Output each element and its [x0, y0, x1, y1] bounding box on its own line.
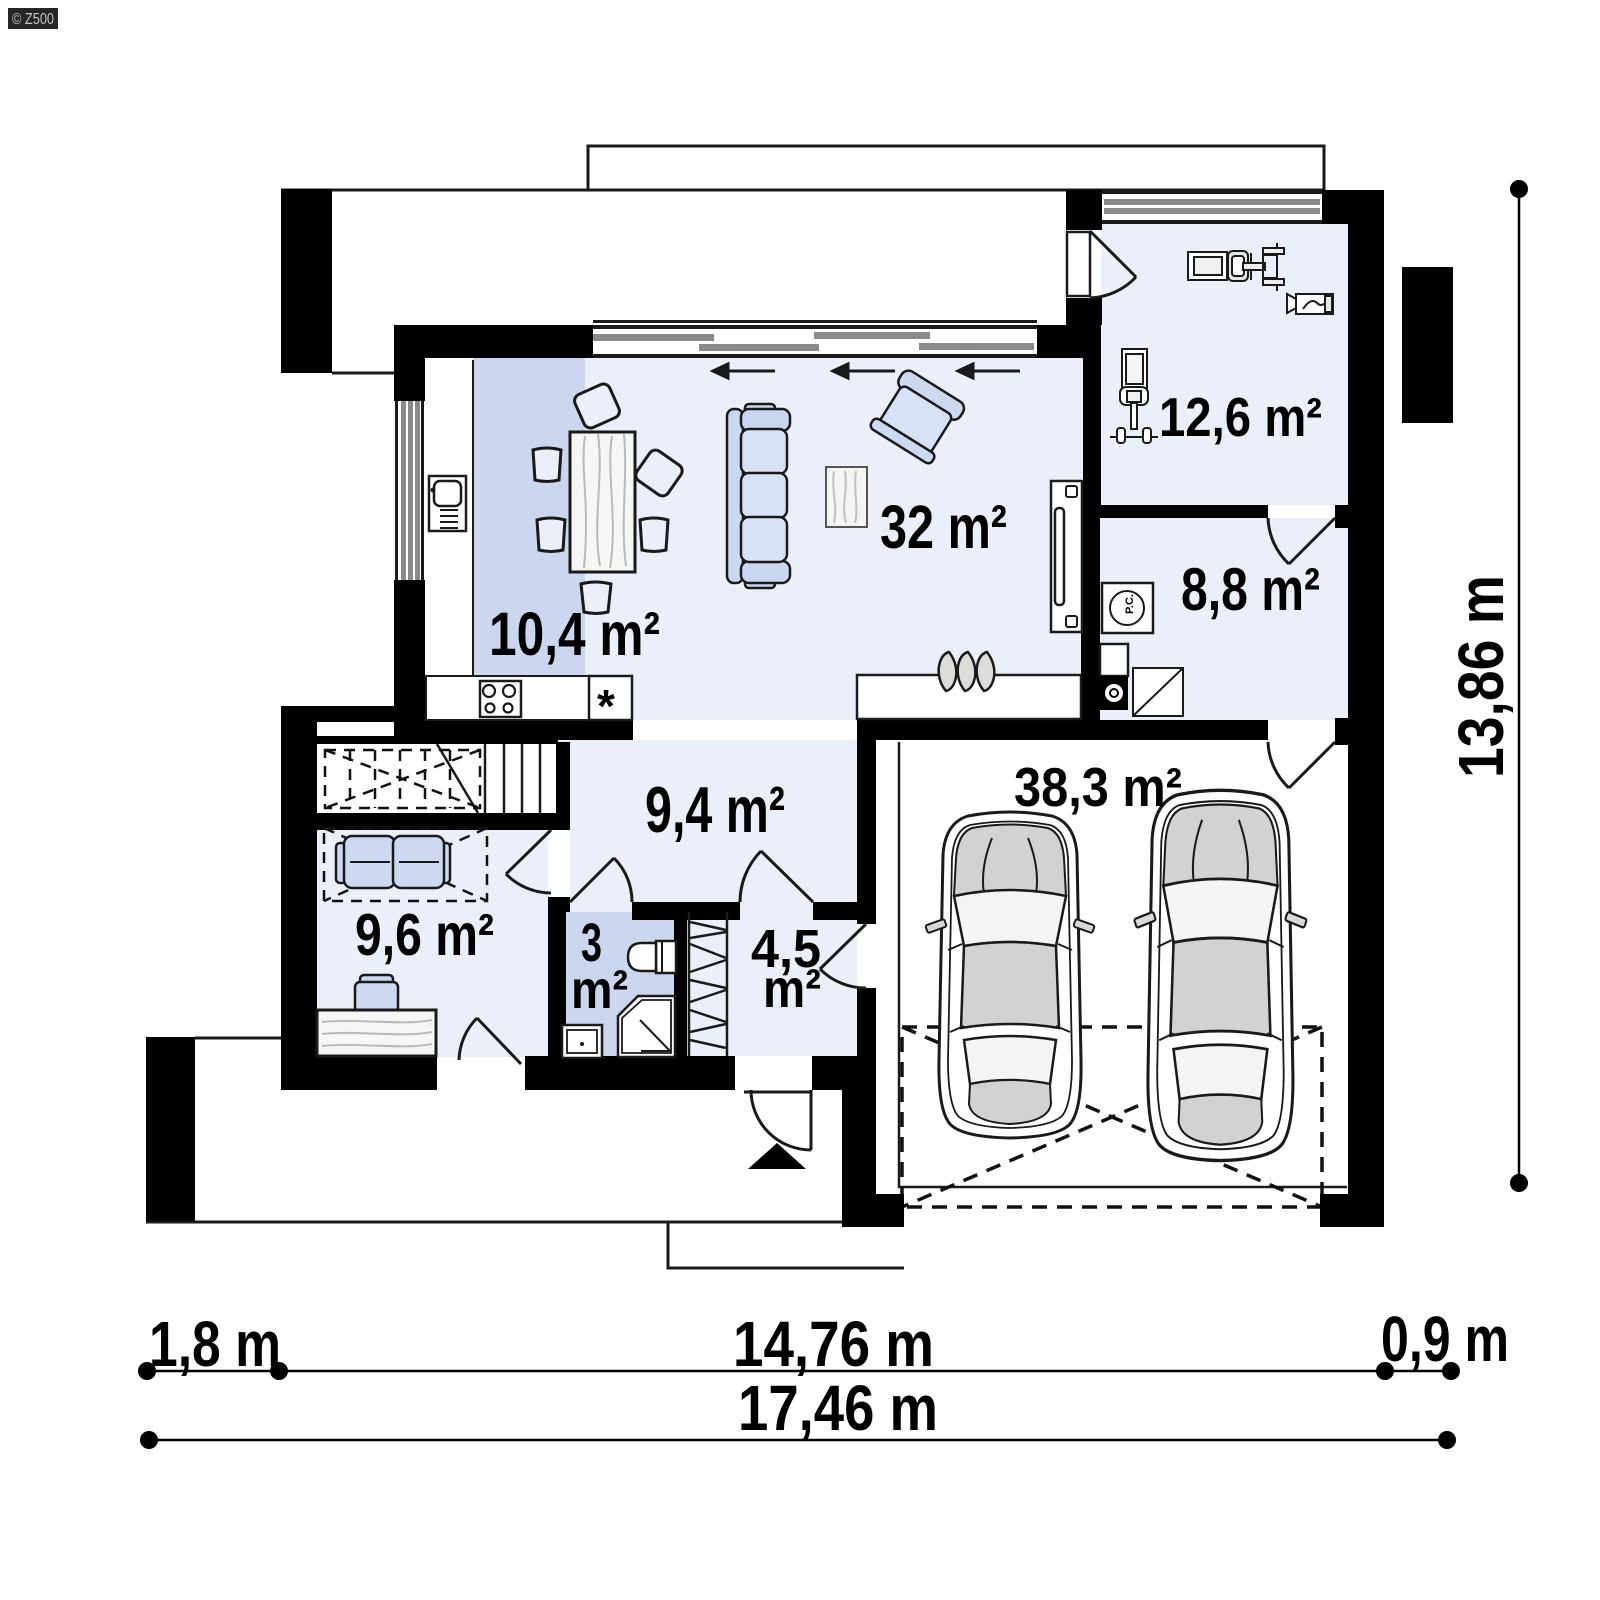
svg-text:*: * [597, 680, 615, 732]
svg-text:8,8 m²: 8,8 m² [1181, 556, 1320, 623]
svg-text:32 m²: 32 m² [880, 493, 1007, 561]
svg-text:0,9 m: 0,9 m [1381, 1303, 1509, 1375]
svg-text:38,3 m²: 38,3 m² [1014, 756, 1182, 818]
svg-text:1,8 m: 1,8 m [149, 1308, 281, 1380]
svg-text:© Z500: © Z500 [12, 11, 54, 28]
svg-text:14,76 m: 14,76 m [733, 1308, 934, 1380]
svg-text:m²: m² [571, 960, 628, 1020]
svg-text:13,86 m: 13,86 m [1445, 575, 1517, 778]
svg-text:9,4 m²: 9,4 m² [645, 773, 785, 846]
svg-text:10,4 m²: 10,4 m² [489, 600, 660, 668]
svg-text:9,6 m²: 9,6 m² [355, 902, 494, 968]
svg-text:P.C.: P.C. [1124, 594, 1136, 614]
svg-text:m²: m² [763, 959, 821, 1019]
svg-text:12,6 m²: 12,6 m² [1159, 386, 1322, 448]
svg-text:17,46 m: 17,46 m [738, 1372, 938, 1444]
